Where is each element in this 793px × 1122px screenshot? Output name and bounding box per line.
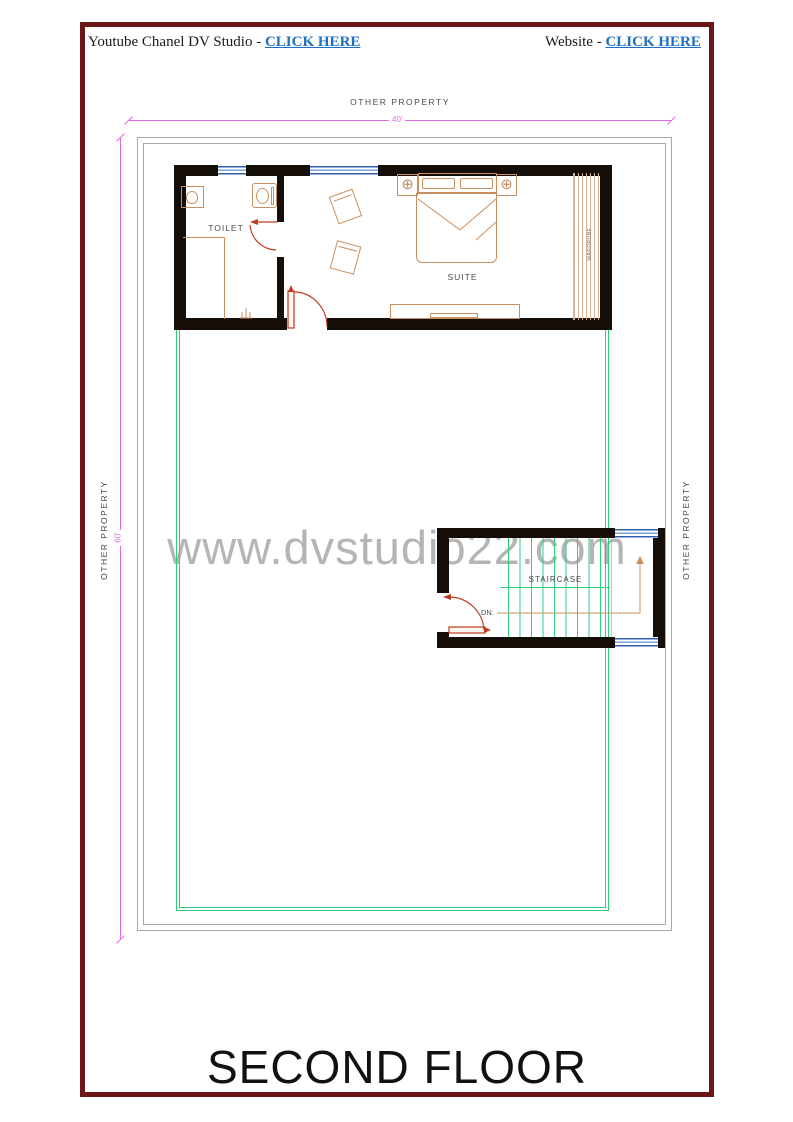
suite-door-arc [294, 292, 327, 327]
header-youtube-label: Youtube Chanel DV Studio - [88, 34, 265, 50]
tap-icon [240, 308, 252, 318]
header-website-label: Website - [545, 34, 605, 50]
header-youtube-link[interactable]: CLICK HERE [265, 34, 360, 50]
staircase-door-arrow-icon [443, 594, 451, 600]
header-website-link[interactable]: CLICK HERE [605, 34, 700, 50]
suite-door-arrow-icon [288, 285, 294, 292]
bed-fold-lines [418, 199, 496, 240]
down-route-line [497, 562, 640, 613]
doors-overlay [0, 0, 793, 1122]
staircase-door-arc [450, 597, 484, 630]
staircase-door-arrow-icon [484, 627, 491, 633]
page-title: SECOND FLOOR [80, 1040, 714, 1094]
floor-plan-page: Youtube Chanel DV Studio - CLICK HERE We… [0, 0, 793, 1122]
toilet-door-arrow-icon [250, 219, 258, 225]
header-youtube: Youtube Chanel DV Studio - CLICK HERE [88, 34, 360, 51]
toilet-door-arc [250, 225, 276, 250]
suite-door-leaf [288, 291, 294, 328]
down-route-arrow-icon [636, 556, 644, 564]
header-website: Website - CLICK HERE [545, 34, 701, 51]
staircase-door-leaf [449, 627, 485, 633]
